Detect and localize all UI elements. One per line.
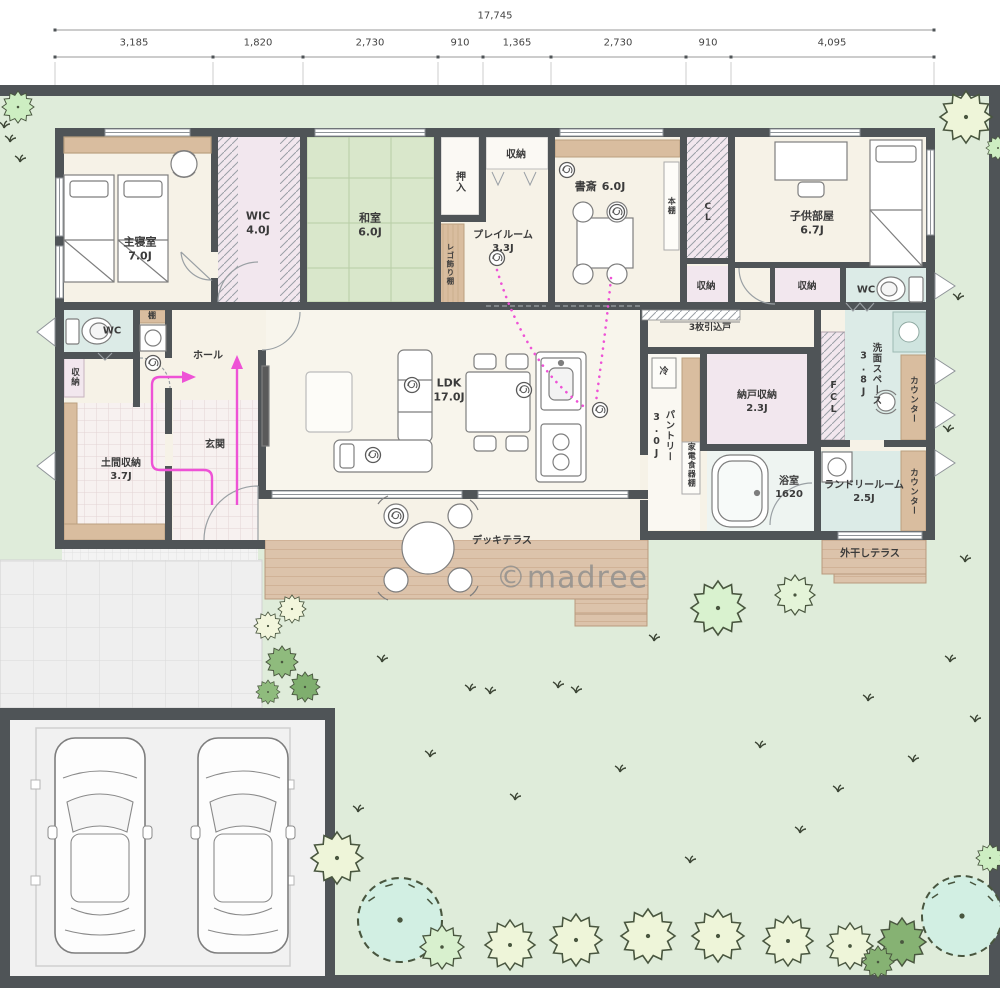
person-icon xyxy=(366,448,381,463)
sofa xyxy=(398,350,432,442)
person-icon xyxy=(517,383,532,398)
person-icon xyxy=(593,403,608,418)
person-icon xyxy=(405,378,420,393)
rug xyxy=(306,372,352,432)
entrance-walkway xyxy=(62,549,258,560)
tree-icon xyxy=(922,876,1000,956)
drying-terrace xyxy=(822,540,926,574)
car-icon xyxy=(191,738,295,953)
room-floors xyxy=(64,137,926,540)
person-icon xyxy=(146,356,161,371)
toilet xyxy=(66,319,79,344)
table xyxy=(577,218,633,268)
floor-plan-page: 17,745 3,185 1,820 2,730 910 1,365 2,730… xyxy=(0,0,1000,1000)
person-icon xyxy=(610,205,625,220)
deck-table xyxy=(402,522,454,574)
person-icon xyxy=(560,163,575,178)
parking-area xyxy=(10,720,325,976)
chair xyxy=(877,393,895,411)
car-icon xyxy=(48,738,152,953)
floor-plan-drawing xyxy=(0,0,1000,1000)
dimension-lines xyxy=(54,29,936,86)
toilet xyxy=(909,277,923,302)
person-icon xyxy=(490,251,505,266)
desk xyxy=(775,142,847,180)
dining-table xyxy=(466,372,530,432)
person-icon xyxy=(389,509,404,524)
chair xyxy=(171,151,197,177)
driveway-tiles xyxy=(0,560,262,708)
tv xyxy=(262,366,269,446)
